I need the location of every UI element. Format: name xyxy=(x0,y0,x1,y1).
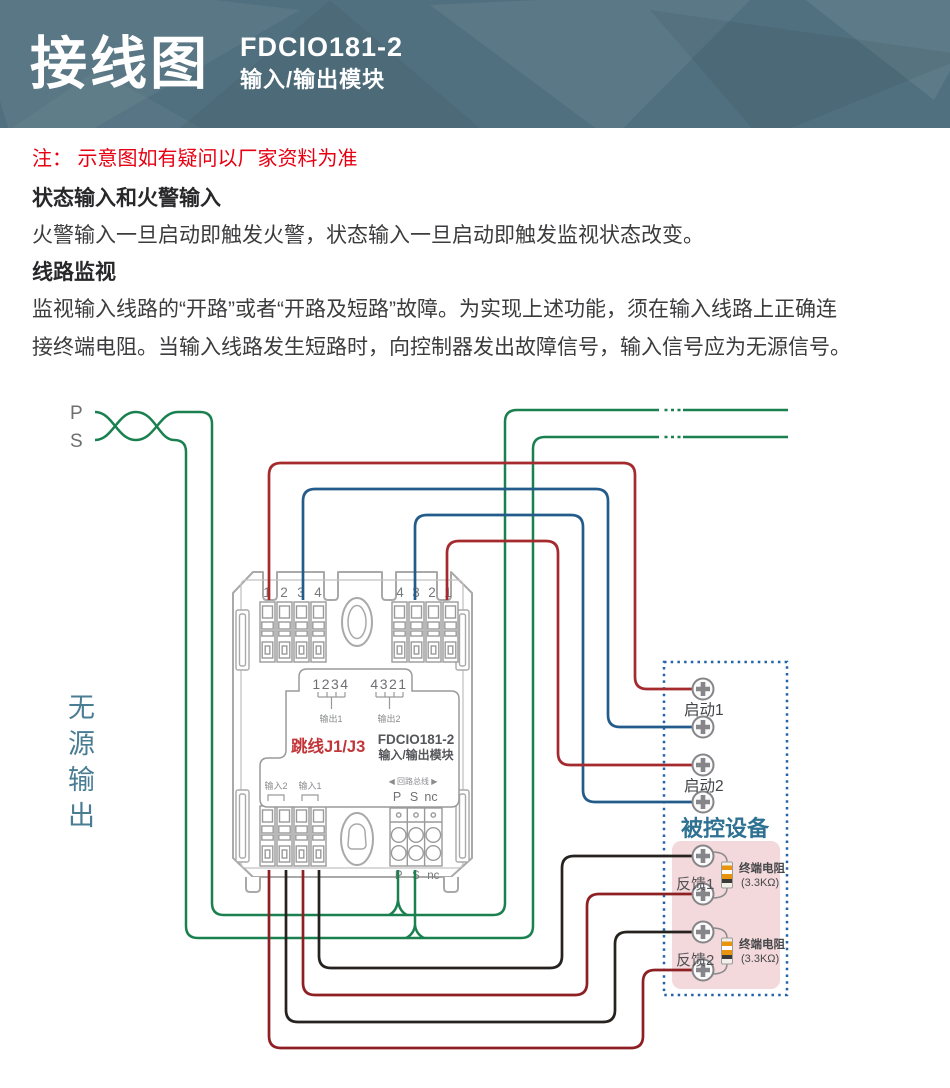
controlled-device-title: 被控设备 xyxy=(681,816,770,841)
loop-s-label: S xyxy=(70,431,83,452)
out2-label: 输出2 xyxy=(377,713,400,724)
jumper-label: 跳线J1/J3 xyxy=(291,736,365,756)
feedback2-label: 反馈2 xyxy=(676,952,714,969)
out2-pin-label: 4321 xyxy=(370,676,407,692)
section-body-inputs: 火警输入一旦启动即触发火警，状态输入一旦启动即触发监视状态改变。 xyxy=(32,217,854,255)
passive-output-label: 无源输出 xyxy=(62,693,96,837)
description-text: 注： 示意图如有疑问以厂家资料为准 状态输入和火警输入 火警输入一旦启动即触发火… xyxy=(0,128,950,367)
module-model-number: FDCIO181-2 xyxy=(240,31,403,63)
loop-bus-terminal-labels: P S nc xyxy=(395,870,440,882)
section-body-monitoring: 监视输入线路的“开路”或者“开路及短路”故障。为实现上述功能，须在输入线路上正确… xyxy=(32,291,854,367)
wire-module-s-tap xyxy=(406,870,424,938)
io-module: 1 2 3 4 4 3 2 1 1234 4321 输出1 输出2 跳线J1/J… xyxy=(233,572,472,892)
resistor2-value: (3.3KΩ) xyxy=(741,953,779,965)
module-type-label: 输入/输出模块 xyxy=(240,65,403,95)
terminal-number: 2 xyxy=(280,585,288,600)
wire-start2-plus xyxy=(447,541,692,765)
loop-bus-pin-labels: P S nc xyxy=(393,790,438,804)
terminal-number: 2 xyxy=(428,585,436,600)
module-model-text: FDCIO181-2 xyxy=(378,732,455,747)
feedback1-label: 反馈1 xyxy=(676,876,714,893)
in2-label: 输入2 xyxy=(264,780,287,791)
bus-nc-label: nc xyxy=(424,790,437,804)
wiring-diagram-canvas: 1 2 3 4 4 3 2 1 1234 4321 输出1 输出2 跳线J1/J… xyxy=(0,383,950,1083)
resistor-icon xyxy=(722,862,733,888)
terminal-block-loop-bus xyxy=(390,808,442,866)
wiring-diagram: 无源输出 xyxy=(0,383,950,1083)
resistor2-name: 终端电阻 xyxy=(739,937,785,951)
page-title: 接线图 xyxy=(30,24,210,104)
loop-bus-label: ◀ 回路总线 ▶ xyxy=(389,776,439,786)
module-mounting-feet xyxy=(246,877,458,892)
page: { "header": { "title": "接线图", "model": "… xyxy=(0,0,950,1083)
out1-pin-label: 1234 xyxy=(312,676,349,692)
bus-p-label: P xyxy=(393,790,401,804)
resistor1-value: (3.3KΩ) xyxy=(741,877,779,889)
module-type-text: 输入/输出模块 xyxy=(378,747,454,762)
start2-label: 启动2 xyxy=(684,777,724,795)
note-line: 注： 示意图如有疑问以厂家资料为准 xyxy=(32,143,926,175)
page-header: 接线图 FDCIO181-2 输入/输出模块 xyxy=(0,0,950,128)
section-heading-inputs: 状态输入和火警输入 xyxy=(32,181,926,217)
out1-label: 输出1 xyxy=(319,713,342,724)
terminal-number: 4 xyxy=(314,585,322,600)
start1-label: 启动1 xyxy=(684,701,724,719)
loop-p-label: P xyxy=(70,403,83,424)
resistor-icon xyxy=(722,938,733,964)
in1-label: 输入1 xyxy=(298,780,321,791)
section-heading-monitoring: 线路监视 xyxy=(32,255,926,291)
resistor1-name: 终端电阻 xyxy=(739,861,785,875)
terminal-number: 4 xyxy=(396,585,404,600)
bus-s-label: S xyxy=(410,790,418,804)
bus-nc-label: nc xyxy=(427,870,439,882)
